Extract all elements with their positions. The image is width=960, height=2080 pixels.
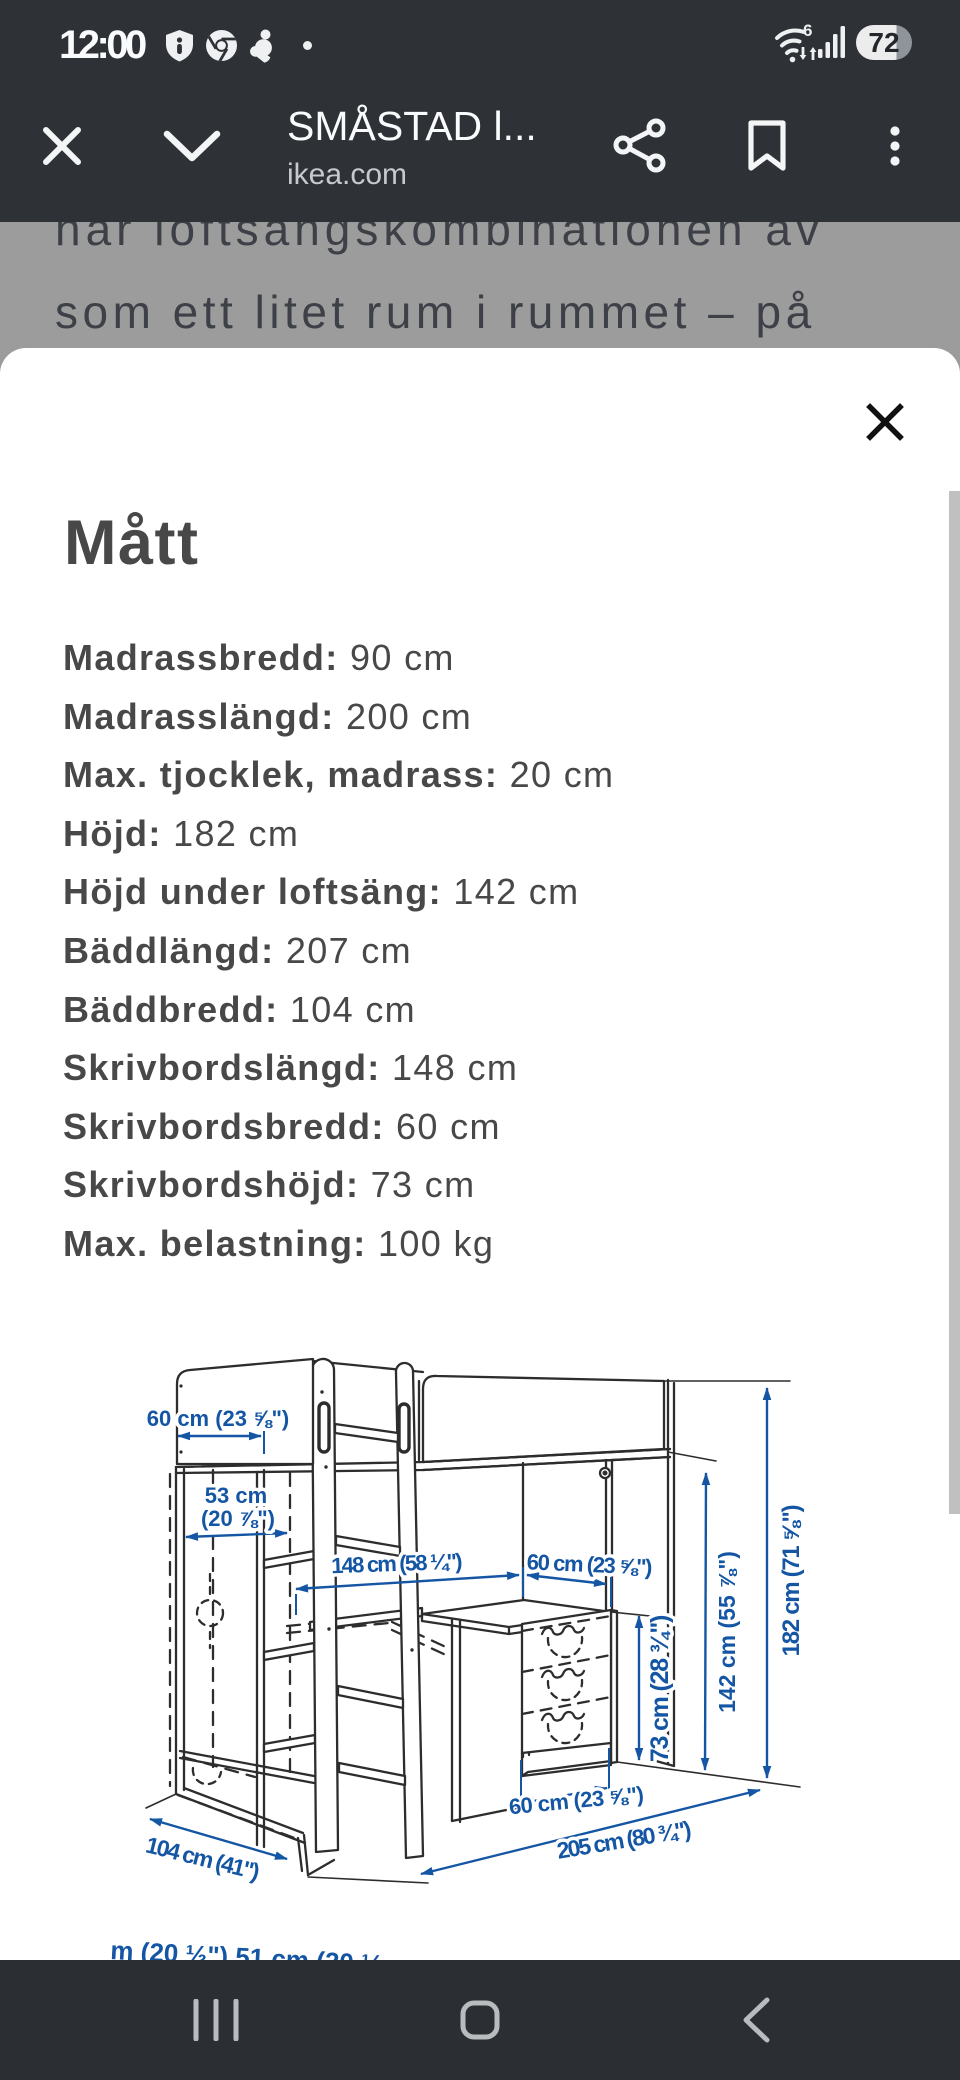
- svg-text:60 cm (23 ⅝"): 60 cm (23 ⅝"): [526, 1549, 652, 1579]
- svg-text:182 cm (71 ⅝"): 182 cm (71 ⅝"): [778, 1505, 805, 1656]
- svg-text:m (20 ½") 51 cm (20 ½: m (20 ½") 51 cm (20 ½: [110, 1935, 384, 1960]
- svg-text:104 cm (41"): 104 cm (41"): [143, 1832, 262, 1885]
- svg-text:142 cm (55 ⅞"): 142 cm (55 ⅞"): [714, 1551, 740, 1713]
- svg-text:(20 ⅞"): (20 ⅞"): [201, 1506, 275, 1531]
- svg-text:6: 6: [803, 22, 812, 40]
- svg-text:73 cm (28 ¾"): 73 cm (28 ¾"): [646, 1615, 674, 1762]
- svg-text:53 cm: 53 cm: [205, 1483, 267, 1508]
- svg-text:148 cm (58 ¼"): 148 cm (58 ¼"): [331, 1549, 463, 1579]
- svg-text:60 cm (23 ⅝"): 60 cm (23 ⅝"): [147, 1406, 290, 1431]
- svg-text:60 cm (23 ⅝"): 60 cm (23 ⅝"): [508, 1782, 645, 1820]
